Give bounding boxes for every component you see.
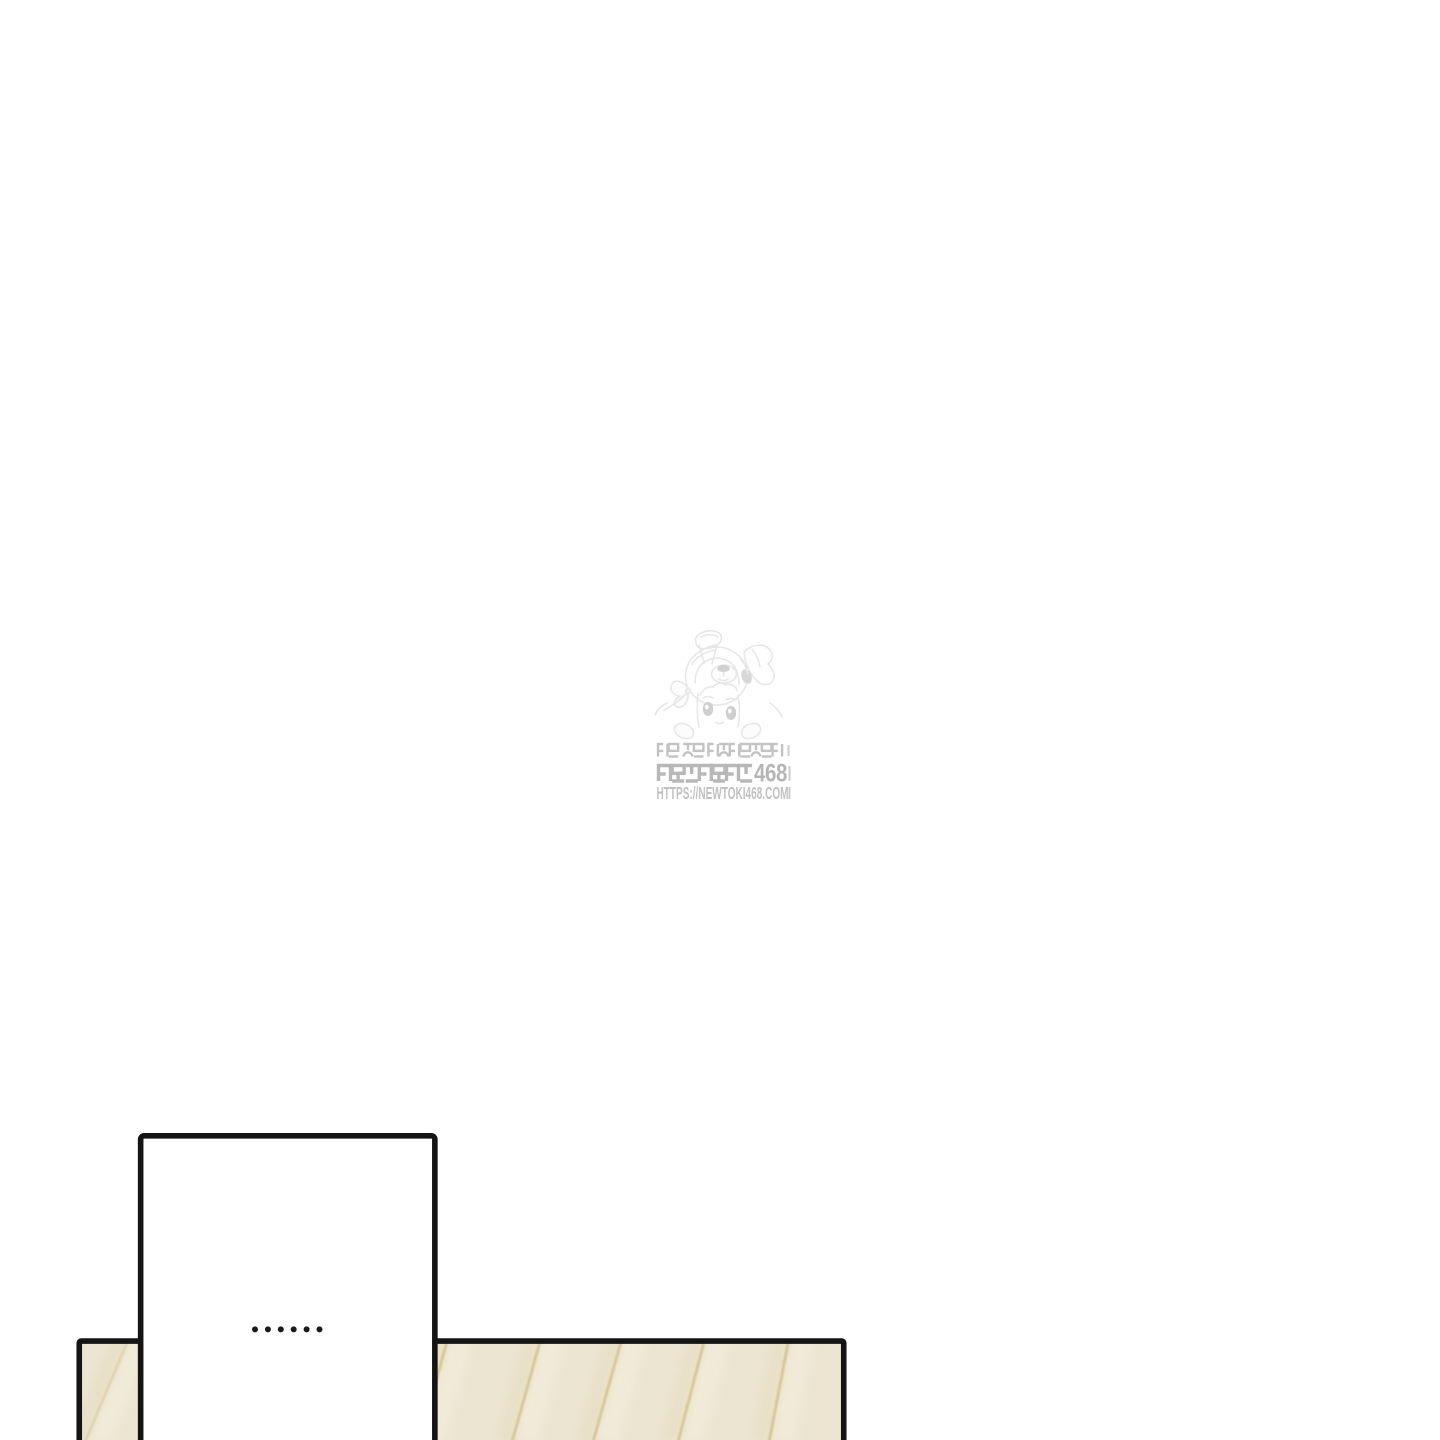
svg-text:HTTPS://NEWTOKI468.COM: HTTPS://NEWTOKI468.COM xyxy=(657,783,789,803)
